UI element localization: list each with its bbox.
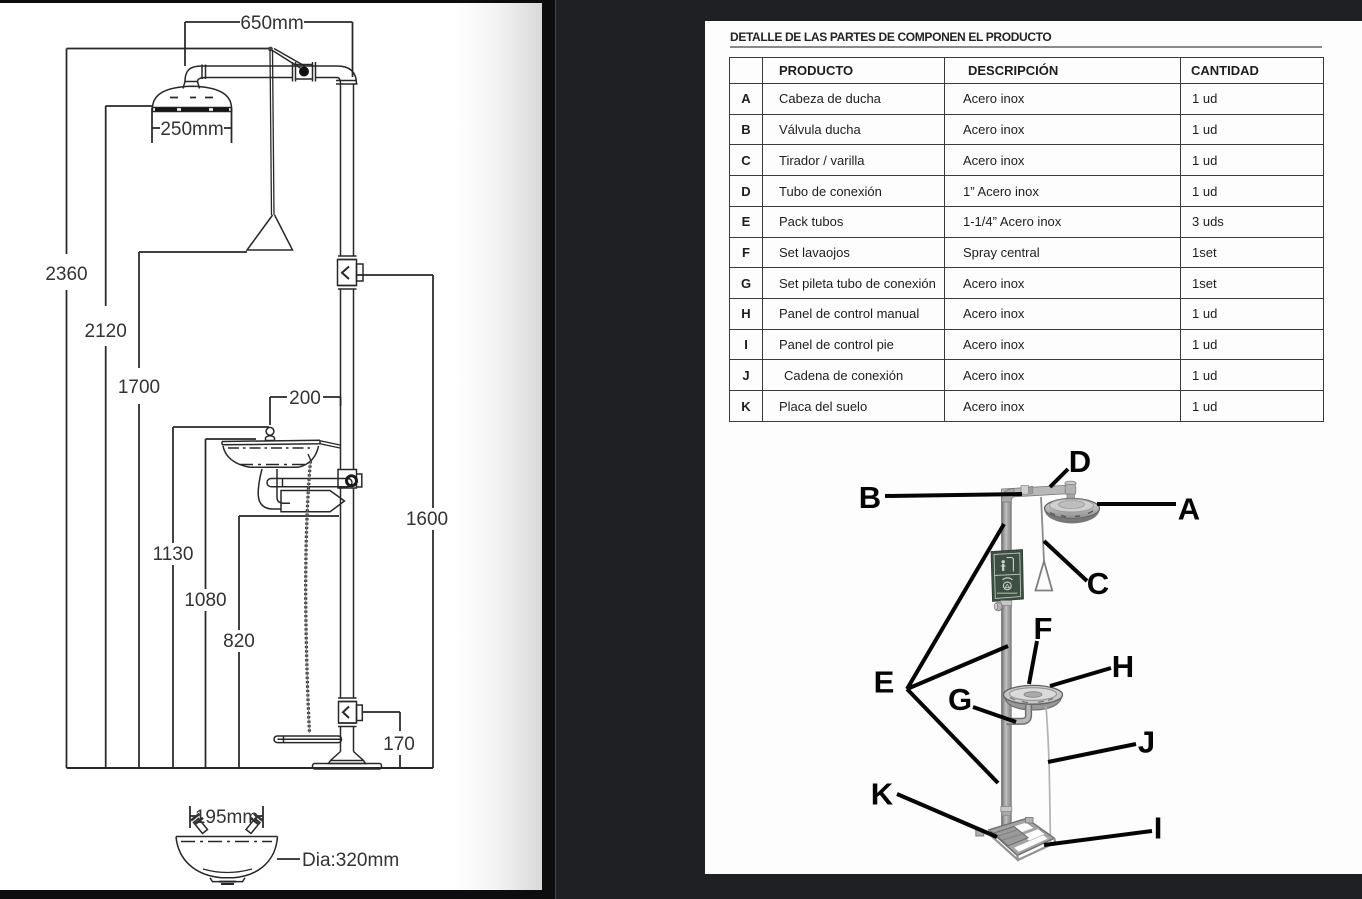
svg-text:B: B: [859, 480, 881, 515]
svg-text:I: I: [1154, 811, 1163, 846]
svg-text:G: G: [948, 682, 972, 717]
svg-text:A: A: [1178, 492, 1200, 527]
svg-text:E: E: [874, 665, 895, 700]
svg-text:H: H: [1112, 649, 1134, 684]
svg-text:C: C: [1087, 566, 1109, 601]
svg-text:D: D: [1069, 444, 1091, 479]
svg-text:K: K: [871, 777, 894, 812]
svg-text:F: F: [1034, 611, 1053, 646]
svg-text:J: J: [1138, 725, 1155, 760]
